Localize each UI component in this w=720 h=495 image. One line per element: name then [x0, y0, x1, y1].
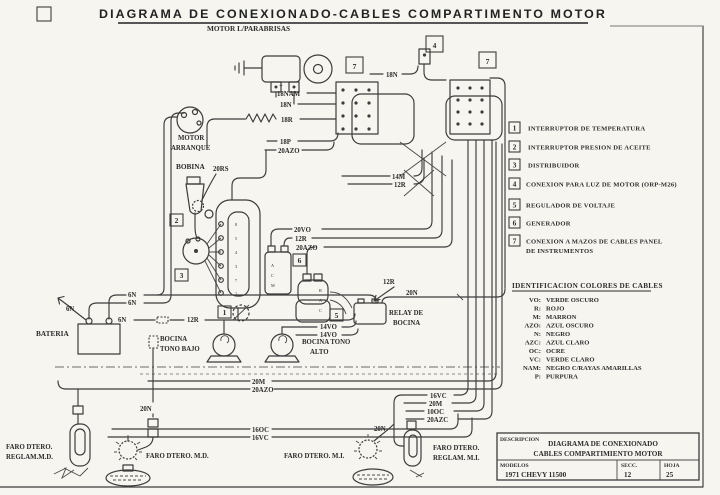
wire-20azo-label: 20AZO [252, 387, 274, 394]
color-list-heading: IDENTIFICACION COLORES DE CABLES [512, 282, 663, 290]
titleblock-hoja-label: HOJA [664, 463, 680, 469]
lamp-faro-md-label: FARO DTERO. M.D. [146, 453, 209, 460]
wire-20n-label: 20N [140, 406, 152, 413]
wire-16vc-label: 16VC [430, 393, 447, 400]
legend-item: DISTRIBUIDOR [528, 163, 580, 170]
color-name: NEGRO C/RAYAS AMARILLAS [546, 365, 642, 372]
color-code: M: [533, 314, 541, 321]
wire-12r-label: 12R [383, 279, 395, 286]
generator-terminal: C [319, 308, 322, 313]
titleblock-desc-line1: DIAGRAMA DE CONEXIONADO [548, 440, 658, 448]
color-name: AZUL CLARO [546, 340, 589, 347]
crossed-out-wires: 14M 12R [342, 142, 446, 196]
wire-6n-label: 6N [128, 300, 136, 307]
lamp-faro-mi: FARO DTERO. M.I. [284, 434, 393, 485]
wire-18n-label: 18N [386, 72, 398, 79]
wire-18n-label: 18N [280, 102, 292, 109]
sheet-title: DIAGRAMA DE CONEXIONADO-CABLES COMPARTIM… [99, 7, 607, 23]
wire-10oc-label: 10OC [427, 409, 444, 416]
titleblock-secc-value: 12 [624, 471, 632, 479]
wire-12r-label: 12R [295, 236, 307, 243]
wire-18nam-label: 18NAM [277, 91, 301, 98]
ground-icon [235, 61, 244, 75]
color-name: MARRON [546, 314, 577, 321]
engine-light-connector: 4 [419, 36, 443, 64]
color-code: AZO: [525, 323, 541, 330]
lamp-faro-md: FARO DTERO. M.D. [106, 435, 209, 486]
wire-14vo-label: 14VO [320, 332, 337, 339]
callout-2-num: 2 [175, 216, 179, 225]
harness-connector-left: 7 18N [336, 57, 418, 144]
legend-num: 6 [513, 219, 517, 228]
wire-20n-left: 20N [138, 336, 158, 450]
wires-top: + 18NAM 18N 18R 18P 20AZO [207, 83, 338, 155]
color-name: VERDE OSCURO [546, 297, 599, 304]
legend-item: INTERRUPTOR DE TEMPERATURA [528, 126, 645, 133]
wire-20vo-label: 20VO [294, 227, 311, 234]
horn-relay: RELAY DE BOCINA 12R 20N [354, 279, 505, 327]
starter-motor: MOTOR ARRANQUE [171, 107, 211, 152]
wires-14vo: 14VO 14VO 5 [282, 309, 358, 339]
color-code: VO: [529, 297, 541, 304]
wire-18p-label: 18P [280, 139, 291, 146]
legend-num: 3 [513, 161, 517, 170]
horn-low-label-2: TONO BAJO [160, 346, 200, 353]
color-code-list: IDENTIFICACION COLORES DE CABLES VO: VER… [512, 282, 663, 381]
legend-item: CONEXION PARA LUZ DE MOTOR (ORP-M26) [526, 182, 677, 189]
wire-20rs-label: 20RS [213, 166, 229, 173]
callout-7-num: 7 [353, 62, 357, 71]
color-name: NEGRO [546, 331, 570, 338]
starter-label-2: ARRANQUE [171, 145, 211, 152]
lamp-reglam-md: FARO DTERO. REGLAM.M.D. [6, 389, 90, 478]
callout-1-num: 1 [223, 308, 227, 317]
legend-item-cont: DE INSTRUMENTOS [526, 248, 593, 255]
lamp-reglam-mi-label-2: REGLAM. M.I. [433, 455, 480, 462]
battery: BATERIA [36, 318, 120, 354]
wire-12r-label: 12R [394, 182, 406, 189]
sealed-beam-icon [106, 470, 150, 486]
color-name: VERDE CLARO [546, 357, 595, 364]
titleblock-descripcion-label: DESCRIPCION [500, 437, 539, 443]
lamp-reglam-md-label-1: FARO DTERO. [6, 444, 53, 451]
horn-high-tone: BOCINA TONO ALTO [265, 327, 350, 362]
wiring-diagram-sheet: DIAGRAMA DE CONEXIONADO-CABLES COMPARTIM… [0, 0, 720, 495]
wire-20azc-label: 20AZC [427, 417, 448, 424]
regulator-terminal: C [271, 273, 274, 278]
generator-terminal: A [319, 298, 322, 303]
wire-20m-label: 20M [252, 379, 266, 386]
legend-item: INTERRUPTOR PRESION DE ACEITE [528, 145, 651, 152]
wire-plus-mark: + [279, 83, 283, 90]
wire-6n-label: 6N [128, 292, 136, 299]
callout-5-num: 5 [335, 311, 339, 320]
wire-20n-label: 20N [406, 290, 418, 297]
wire-20azo-label: 20AZO [296, 245, 318, 252]
generator-terminal: B [319, 288, 322, 293]
legend-num: 2 [513, 143, 517, 152]
wiper-motor-label: MOTOR L/PARABRISAS [207, 24, 290, 33]
chassis-lines [55, 367, 500, 374]
starter-label-1: MOTOR [178, 135, 204, 142]
regulator-terminal: M [271, 283, 275, 288]
callout-4-num: 4 [433, 41, 437, 50]
titleblock-desc-line2: CABLES COMPARTIMIENTO MOTOR [533, 450, 663, 458]
color-code: OC: [529, 348, 541, 355]
oil-pressure-switch: 20RS 2 [170, 166, 229, 226]
resistor-wire-icon [246, 114, 276, 122]
color-code: N: [534, 331, 541, 338]
titleblock-modelos-label: MODELOS [500, 463, 529, 469]
titleblock-modelos-value: 1971 CHEVY 11500 [505, 471, 567, 479]
distributor: 3 [175, 224, 221, 293]
lamp-burst-icon [359, 440, 377, 458]
wire-6n-label: 6N [118, 317, 126, 324]
lamp-burst-icon [119, 441, 137, 459]
ignition-coil: BOBINA [176, 162, 206, 238]
wire-18r-label: 18R [281, 117, 293, 124]
legend-num: 7 [513, 237, 517, 246]
corner-stamp-box [37, 7, 51, 21]
wire-6n-label: 6N [66, 306, 74, 313]
color-code: VC: [529, 357, 541, 364]
legend-num: 5 [513, 201, 517, 210]
legend-item: REGULADOR DE VOLTAJE [526, 203, 616, 210]
plug-terminal-num: 1 [235, 291, 237, 296]
horn-high-label-1: BOCINA TONO [302, 339, 350, 346]
wire-20azo-label: 20AZO [278, 148, 300, 155]
lamp-reglam-md-label-2: REGLAM.M.D. [6, 454, 53, 461]
color-code: P: [535, 374, 541, 381]
bulb-icon [70, 424, 90, 466]
titleblock-hoja-value: 25 [666, 471, 674, 479]
wire-14vo-label: 14VO [320, 324, 337, 331]
wire-14m-label: 14M [392, 174, 406, 181]
color-code: AZC: [525, 340, 541, 347]
wire-12r-label: 12R [187, 317, 199, 324]
legend-item: CONEXION A MAZOS DE CABLES PANEL [526, 239, 663, 246]
legend-num: 1 [513, 124, 517, 133]
wire-20m-label: 20M [429, 401, 443, 408]
wires-bundle-bottom: 16VC 20M 10OC 20AZC 20N [374, 140, 492, 446]
color-name: PURPURA [546, 374, 578, 381]
battery-label: BATERIA [36, 329, 69, 338]
wire-20n-label: 20N [374, 426, 386, 433]
sealed-beam-icon [353, 469, 393, 485]
wire-16vc-label: 16VC [252, 435, 269, 442]
plug-terminal-num: 4 [235, 250, 238, 255]
wiper-motor: MOTOR L/PARABRISAS [207, 24, 332, 92]
plug-terminal-num: 5 [235, 236, 237, 241]
wire-16oc-label: 16OC [252, 427, 269, 434]
color-code: R: [534, 306, 541, 313]
lamp-faro-mi-label: FARO DTERO. M.I. [284, 453, 345, 460]
color-name: ROJO [546, 306, 564, 313]
plug-terminal-num: 8 [235, 222, 237, 227]
title-block: DESCRIPCION DIAGRAMA DE CONEXIONADO CABL… [497, 433, 699, 480]
horn-high-label-2: ALTO [310, 349, 329, 356]
page-title: DIAGRAMA DE CONEXIONADO-CABLES COMPARTIM… [99, 7, 607, 21]
plug-terminal-num: 3 [235, 264, 237, 269]
horn-low-tone: BOCINA TONO BAJO [160, 320, 241, 362]
legend: 1 INTERRUPTOR DE TEMPERATURA 2 INTERRUPT… [509, 122, 677, 255]
color-name: AZUL OSCURO [546, 323, 594, 330]
lamp-reglam-mi-label-1: FARO DTERO. [433, 445, 480, 452]
harness-connector-right: 7 [424, 52, 505, 288]
callout-6-num: 6 [298, 256, 302, 265]
coil-label: BOBINA [176, 162, 206, 171]
plug-terminal-num: 7 [235, 278, 237, 283]
legend-item: GENERADOR [526, 221, 571, 228]
callout-7-num: 7 [486, 57, 490, 66]
voltage-regulator: A C M [265, 246, 291, 294]
diagram-canvas: DIAGRAMA DE CONEXIONADO-CABLES COMPARTIM… [0, 0, 720, 495]
color-name: OCRE [546, 348, 566, 355]
titleblock-secc-label: SECC. [621, 463, 638, 469]
relay-label-1: RELAY DE [389, 310, 424, 317]
callout-3-num: 3 [180, 271, 184, 280]
legend-num: 4 [513, 180, 517, 189]
horn-low-label-1: BOCINA [160, 336, 187, 343]
color-code: NAM: [523, 365, 541, 372]
regulator-terminal: A [271, 263, 274, 268]
relay-label-2: BOCINA [393, 320, 420, 327]
